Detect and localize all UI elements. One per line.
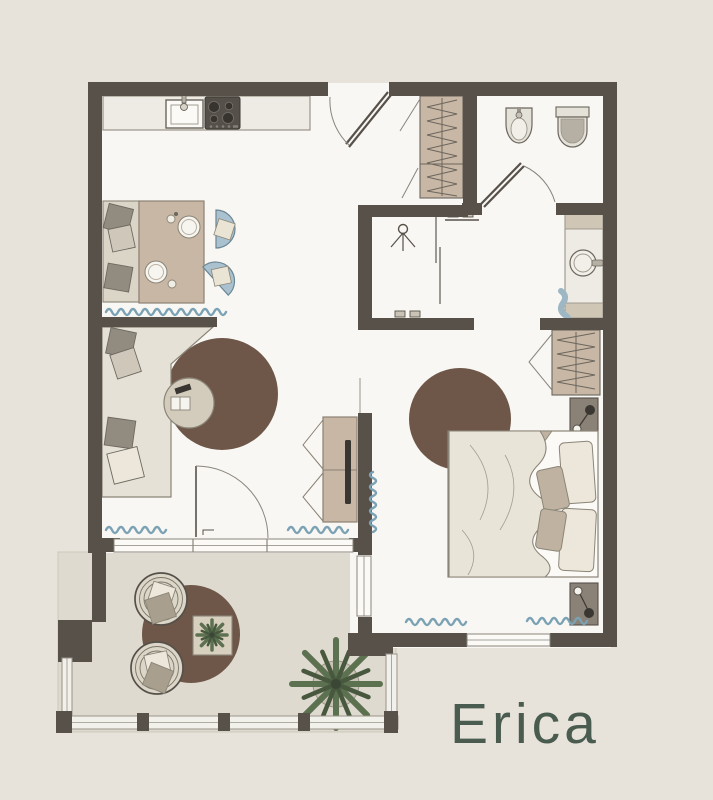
duvet <box>449 431 550 577</box>
plan-title: Erica <box>450 692 600 756</box>
papasan-chair <box>135 573 187 625</box>
papasan-chair <box>131 642 183 694</box>
table-lamp-icon <box>585 405 595 415</box>
radiator-squiggle <box>106 309 226 315</box>
nightstand <box>570 583 598 625</box>
floor-plan: Erica <box>0 0 713 800</box>
floor-plan-page: Erica <box>0 0 713 800</box>
coffee-table <box>164 378 214 428</box>
kitchen-sink <box>166 95 203 128</box>
cup-icon <box>168 280 176 288</box>
double-bed <box>448 431 598 577</box>
cooktop <box>205 97 240 129</box>
kitchen <box>103 95 310 130</box>
potted-plant-icon <box>197 620 227 650</box>
bedroom-window <box>467 634 550 646</box>
burner-icon <box>225 102 233 110</box>
burner-icon <box>223 113 234 124</box>
table-lamp-icon <box>584 608 594 618</box>
bidet <box>506 107 532 143</box>
cup-icon <box>174 212 178 216</box>
toilet <box>556 107 589 147</box>
burner-icon <box>209 102 220 113</box>
faucet-icon <box>592 260 603 266</box>
cup-icon <box>167 215 175 223</box>
bedroom-balcony-window <box>357 556 371 616</box>
faucet-icon <box>182 95 186 103</box>
tv-icon <box>345 440 351 504</box>
chair-pillow <box>211 266 231 286</box>
book-icon <box>171 397 190 410</box>
entrance-threshold <box>328 83 389 96</box>
table-lamp-icon <box>574 587 582 595</box>
living-window <box>114 539 353 552</box>
vanity <box>565 214 603 318</box>
burner-icon <box>210 115 218 123</box>
dining-partition-wall <box>102 317 217 327</box>
side-table <box>193 616 232 655</box>
